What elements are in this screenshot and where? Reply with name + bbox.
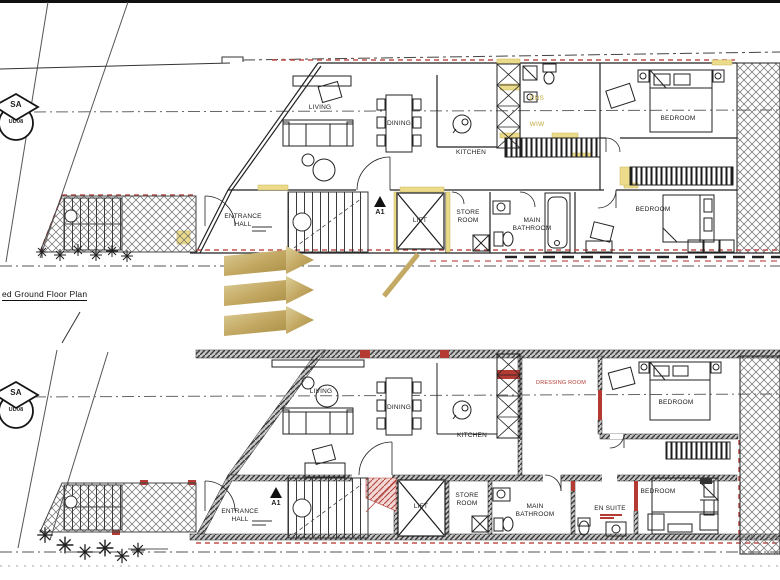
site-marker-ud08-ground: UD08: [9, 119, 24, 126]
first-terrace-garden: [37, 483, 196, 563]
first-neighbor-building-hatch: [740, 356, 780, 554]
section-marker-a1-first: A1: [271, 500, 280, 508]
room-label-dressing-room-first: DRESSING ROOM: [536, 380, 586, 387]
first-hall-and-stairs: [205, 442, 396, 538]
room-label-lift-ground: LIFT: [413, 217, 427, 225]
site-marker-ud08-first: UD08: [9, 407, 24, 414]
room-label-dining-ground: DINING: [387, 120, 411, 128]
room-label-en-suite-first: EN SUITE: [594, 505, 626, 513]
site-marker-sa-first: SA: [10, 388, 22, 398]
room-label-bedroom-bottom-first: BEDROOM: [641, 488, 676, 496]
room-label-kitchen-first: KITCHEN: [457, 432, 487, 440]
first-red-hatch-stair: [366, 478, 396, 511]
room-label-bedroom-mid-ground: BEDROOM: [636, 206, 671, 214]
architectural-drawing-sheet: ed Ground Floor Plan SA UD08 SA UD08 LIV…: [0, 0, 780, 580]
room-label-wiw-ground: WIW: [530, 121, 545, 129]
ground-terrace-garden: [36, 196, 196, 262]
ground-neighbor-building-hatch: [737, 63, 780, 253]
ground-plan-caption: ed Ground Floor Plan: [2, 289, 87, 301]
room-label-lift-first: LIFT: [414, 503, 428, 511]
room-label-main-bathroom-first: MAIN BATHROOM: [511, 503, 559, 519]
ground-bedroom-mid-furniture: [586, 190, 734, 252]
gold-chevron-watermark-logo: [224, 246, 418, 336]
room-label-store-room-ground: STORE ROOM: [453, 209, 483, 225]
room-label-dining-first: DINING: [387, 404, 411, 412]
room-label-entrance-hall-first: ENTRANCE HALL: [218, 508, 262, 524]
first-kitchen-fixtures: [437, 354, 520, 438]
room-label-living-ground: LIVING: [309, 104, 332, 112]
ground-living-furniture: [283, 76, 353, 181]
room-label-bedroom-top-ground: BEDROOM: [661, 115, 696, 123]
first-floor-plan: [37, 350, 780, 563]
ground-outline: [190, 63, 780, 253]
site-marker-sa-ground: SA: [10, 100, 22, 110]
room-label-bedroom-top-first: BEDROOM: [659, 399, 694, 407]
first-dressing-room: [608, 367, 635, 389]
room-label-entrance-hall-ground: ENTRANCE HALL: [221, 213, 265, 229]
first-living-furniture: [272, 360, 364, 477]
ground-hall-and-stairs: [205, 157, 390, 252]
room-label-store-room-first: STORE ROOM: [452, 492, 482, 508]
first-bathroom-fixtures: [493, 488, 513, 531]
room-label-ens-ground: ENS: [530, 95, 544, 103]
section-marker-a1-ground: A1: [375, 209, 384, 217]
ground-floor-plan: [36, 59, 780, 262]
room-label-main-bathroom-ground: MAIN BATHROOM: [508, 217, 556, 233]
room-label-living-first: LIVING: [310, 388, 333, 396]
first-store-room: [472, 516, 488, 532]
room-label-kitchen-ground: KITCHEN: [456, 149, 486, 157]
ground-bedroom-top-furniture: [606, 70, 724, 152]
